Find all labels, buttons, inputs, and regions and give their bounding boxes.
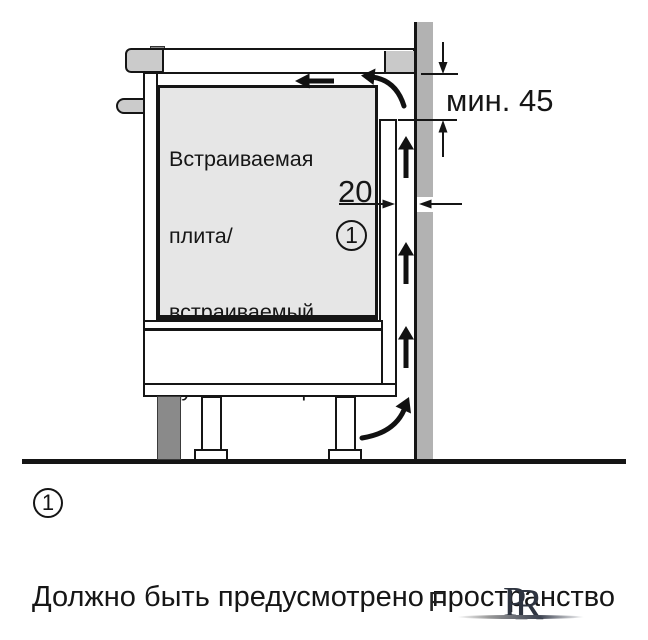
rear-gap-dimension-label: 20: [338, 174, 372, 210]
oven-door-handle: [116, 98, 146, 114]
worktop: [157, 48, 415, 74]
installation-diagram-page: Встраиваемая плита/ встраиваемый духовой…: [0, 0, 648, 640]
drawer-box-inner-line: [145, 328, 381, 331]
oven-label: Встраиваемая плита/ встраиваемый духовой…: [169, 96, 314, 453]
cabinet-leg-front: [201, 396, 222, 451]
airflow-curve-bottom-icon: [362, 397, 411, 438]
worktop-front-cap: [125, 48, 164, 73]
airflow-arrow-up-3-icon: [398, 326, 414, 368]
oven-label-line-1: Встраиваемая: [169, 147, 314, 173]
watermark-letter-r: R: [514, 583, 543, 627]
figure-callout-1-number: 1: [345, 222, 358, 249]
dimension-arrow-up-icon: [439, 120, 448, 157]
legend-callout-1-number: 1: [42, 490, 54, 516]
wall-section: [414, 22, 433, 460]
cabinet-leg-front-base: [194, 449, 228, 461]
airflow-arrow-up-1-icon: [398, 136, 414, 178]
dimension-arrow-down-icon: [439, 42, 448, 74]
watermark-underline-swoosh: [457, 615, 584, 619]
legend-callout-1: 1: [33, 488, 63, 518]
cabinet-leg-rear-base: [328, 449, 362, 461]
page-letter: F: [428, 586, 445, 618]
cabinet-leg-rear: [335, 396, 356, 451]
figure-callout-1: 1: [336, 220, 367, 251]
worktop-wall-infill: [384, 51, 414, 72]
oven-label-line-2: плита/: [169, 224, 314, 250]
cabinet-base-slab: [143, 383, 397, 397]
cabinet-front-panel: [143, 72, 158, 323]
plinth-foot-dark: [157, 396, 181, 460]
airflow-arrow-up-2-icon: [398, 242, 414, 284]
min-gap-dimension-label: мин. 45: [446, 83, 553, 119]
floor-line: [22, 459, 626, 464]
